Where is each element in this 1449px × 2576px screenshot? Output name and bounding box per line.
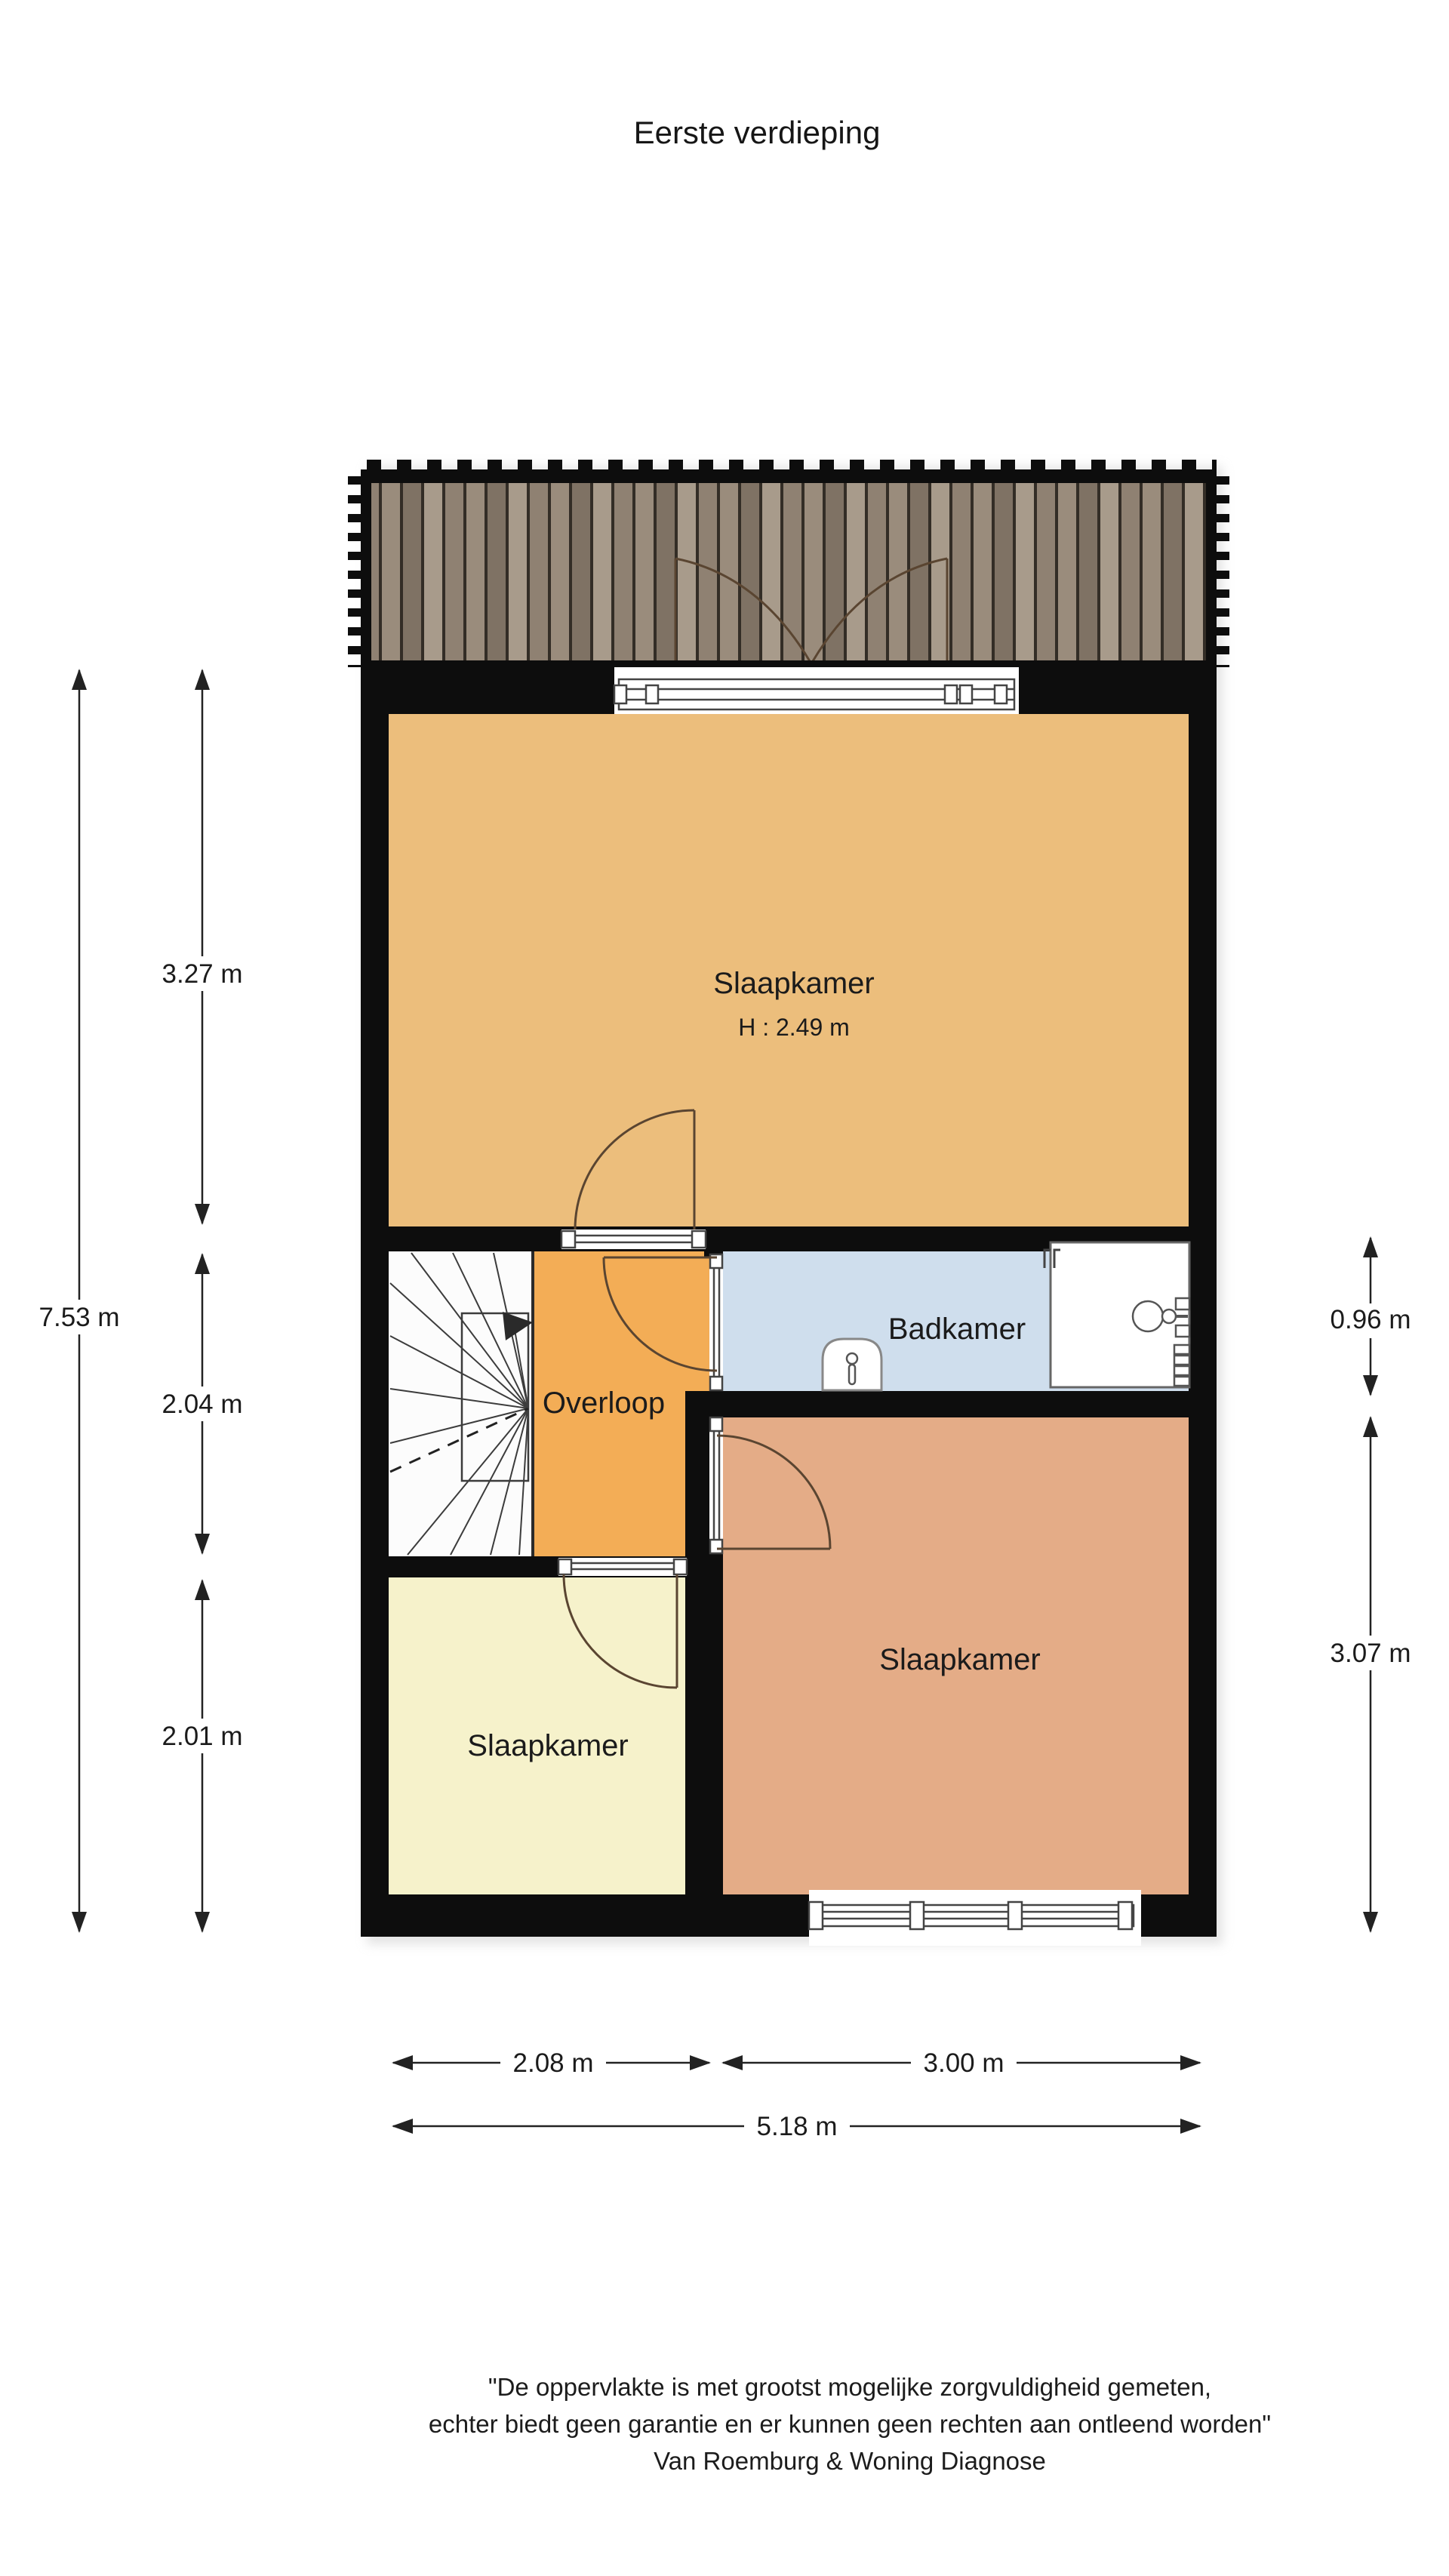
wall-bathroom-bottom	[687, 1391, 1189, 1417]
window-bottom	[809, 1890, 1141, 1946]
label-landing: Overloop	[543, 1386, 665, 1420]
floor-plan: Slaapkamer H : 2.49 m Overloop Badkamer …	[0, 0, 1449, 2576]
dimension-total-width: 5.18 m	[392, 2109, 1201, 2144]
doorway-bedroom-back	[709, 1417, 723, 1553]
window-top	[614, 667, 1019, 714]
label-bedroom-main: Slaapkamer	[713, 967, 874, 1000]
dimension-bedroom-back-depth: 3.07 m	[1318, 1416, 1423, 1933]
wall-top-left	[361, 660, 614, 714]
balcony-deck-icon	[348, 460, 1229, 671]
disclaimer-line-2: echter biedt geen garantie en er kunnen …	[429, 2405, 1271, 2442]
label-bathroom: Badkamer	[888, 1313, 1026, 1346]
wall-bottom-left	[361, 1894, 809, 1937]
disclaimer: "De oppervlakte is met grootst mogelijke…	[429, 2368, 1271, 2479]
deck-planks	[371, 483, 1206, 664]
wall-spine-upper	[685, 1391, 710, 1577]
dimension-bedroom-small-depth: 2.01 m	[149, 1579, 255, 1933]
dimension-bathroom-depth: 0.96 m	[1318, 1236, 1423, 1396]
dimension-width-right: 3.00 m	[721, 2045, 1201, 2080]
disclaimer-line-1: "De oppervlakte is met grootst mogelijke…	[429, 2368, 1271, 2405]
label-bedroom-back: Slaapkamer	[879, 1643, 1040, 1676]
wall-left	[361, 660, 389, 1937]
svg-text:0.96 m: 0.96 m	[1331, 1305, 1411, 1334]
doorway-bedroom-main	[561, 1230, 706, 1249]
wall-bottom-right	[1141, 1894, 1217, 1937]
svg-text:5.18 m: 5.18 m	[757, 2112, 838, 2141]
svg-text:2.01 m: 2.01 m	[162, 1722, 243, 1751]
room-stairs-area	[389, 1251, 533, 1556]
disclaimer-line-3: Van Roemburg & Woning Diagnose	[429, 2442, 1271, 2479]
wall-right	[1189, 660, 1217, 1937]
svg-text:3.07 m: 3.07 m	[1331, 1639, 1411, 1668]
label-ceiling-height: H : 2.49 m	[738, 1014, 850, 1041]
svg-text:2.04 m: 2.04 m	[162, 1390, 243, 1419]
wall-spine-sliver-bottom	[710, 1553, 723, 1577]
dimension-total-height: 7.53 m	[26, 669, 132, 1933]
label-bedroom-small: Slaapkamer	[467, 1729, 628, 1762]
wall-top-right	[1019, 660, 1217, 714]
doorway-bedroom-small	[558, 1558, 687, 1576]
wall-spine-stub	[704, 1226, 723, 1257]
svg-text:3.27 m: 3.27 m	[162, 959, 243, 989]
svg-text:2.08 m: 2.08 m	[513, 2048, 594, 2078]
wall-spine-lower	[685, 1577, 723, 1902]
deck-teeth-right	[1217, 469, 1229, 667]
svg-text:7.53 m: 7.53 m	[39, 1303, 120, 1332]
shower-icon	[1044, 1242, 1189, 1387]
stairs-edge-line	[531, 1251, 534, 1556]
deck-teeth-left	[348, 469, 361, 667]
wall-spine-sliver-top	[710, 1391, 723, 1417]
dimension-bedroom-main-depth: 3.27 m	[149, 669, 255, 1225]
dimension-landing-depth: 2.04 m	[149, 1253, 255, 1555]
toilet-icon	[823, 1339, 881, 1390]
radiator-icon	[1174, 1345, 1189, 1386]
dimension-width-left: 2.08 m	[392, 2045, 711, 2080]
svg-text:3.00 m: 3.00 m	[924, 2048, 1004, 2078]
